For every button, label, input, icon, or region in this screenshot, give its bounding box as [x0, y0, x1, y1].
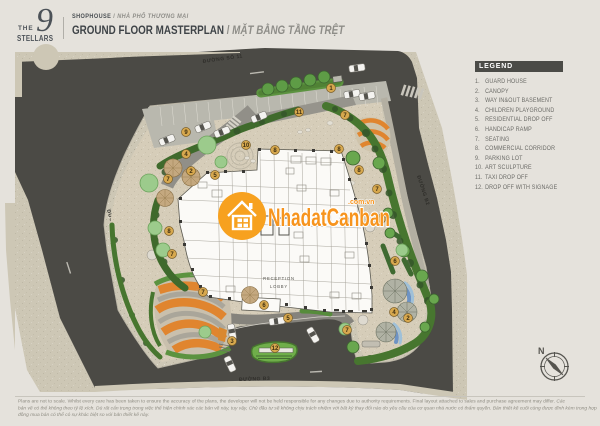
- svg-text:.com.vn: .com.vn: [348, 199, 374, 206]
- svg-text:10: 10: [243, 143, 250, 149]
- svg-text:RECEPTION: RECEPTION: [263, 276, 295, 281]
- svg-text:LOBBY: LOBBY: [270, 284, 288, 289]
- svg-text:NhadatCanban: NhadatCanban: [268, 204, 390, 232]
- svg-text:N: N: [538, 346, 545, 356]
- svg-text:12: 12: [272, 346, 279, 352]
- svg-text:11: 11: [296, 110, 303, 116]
